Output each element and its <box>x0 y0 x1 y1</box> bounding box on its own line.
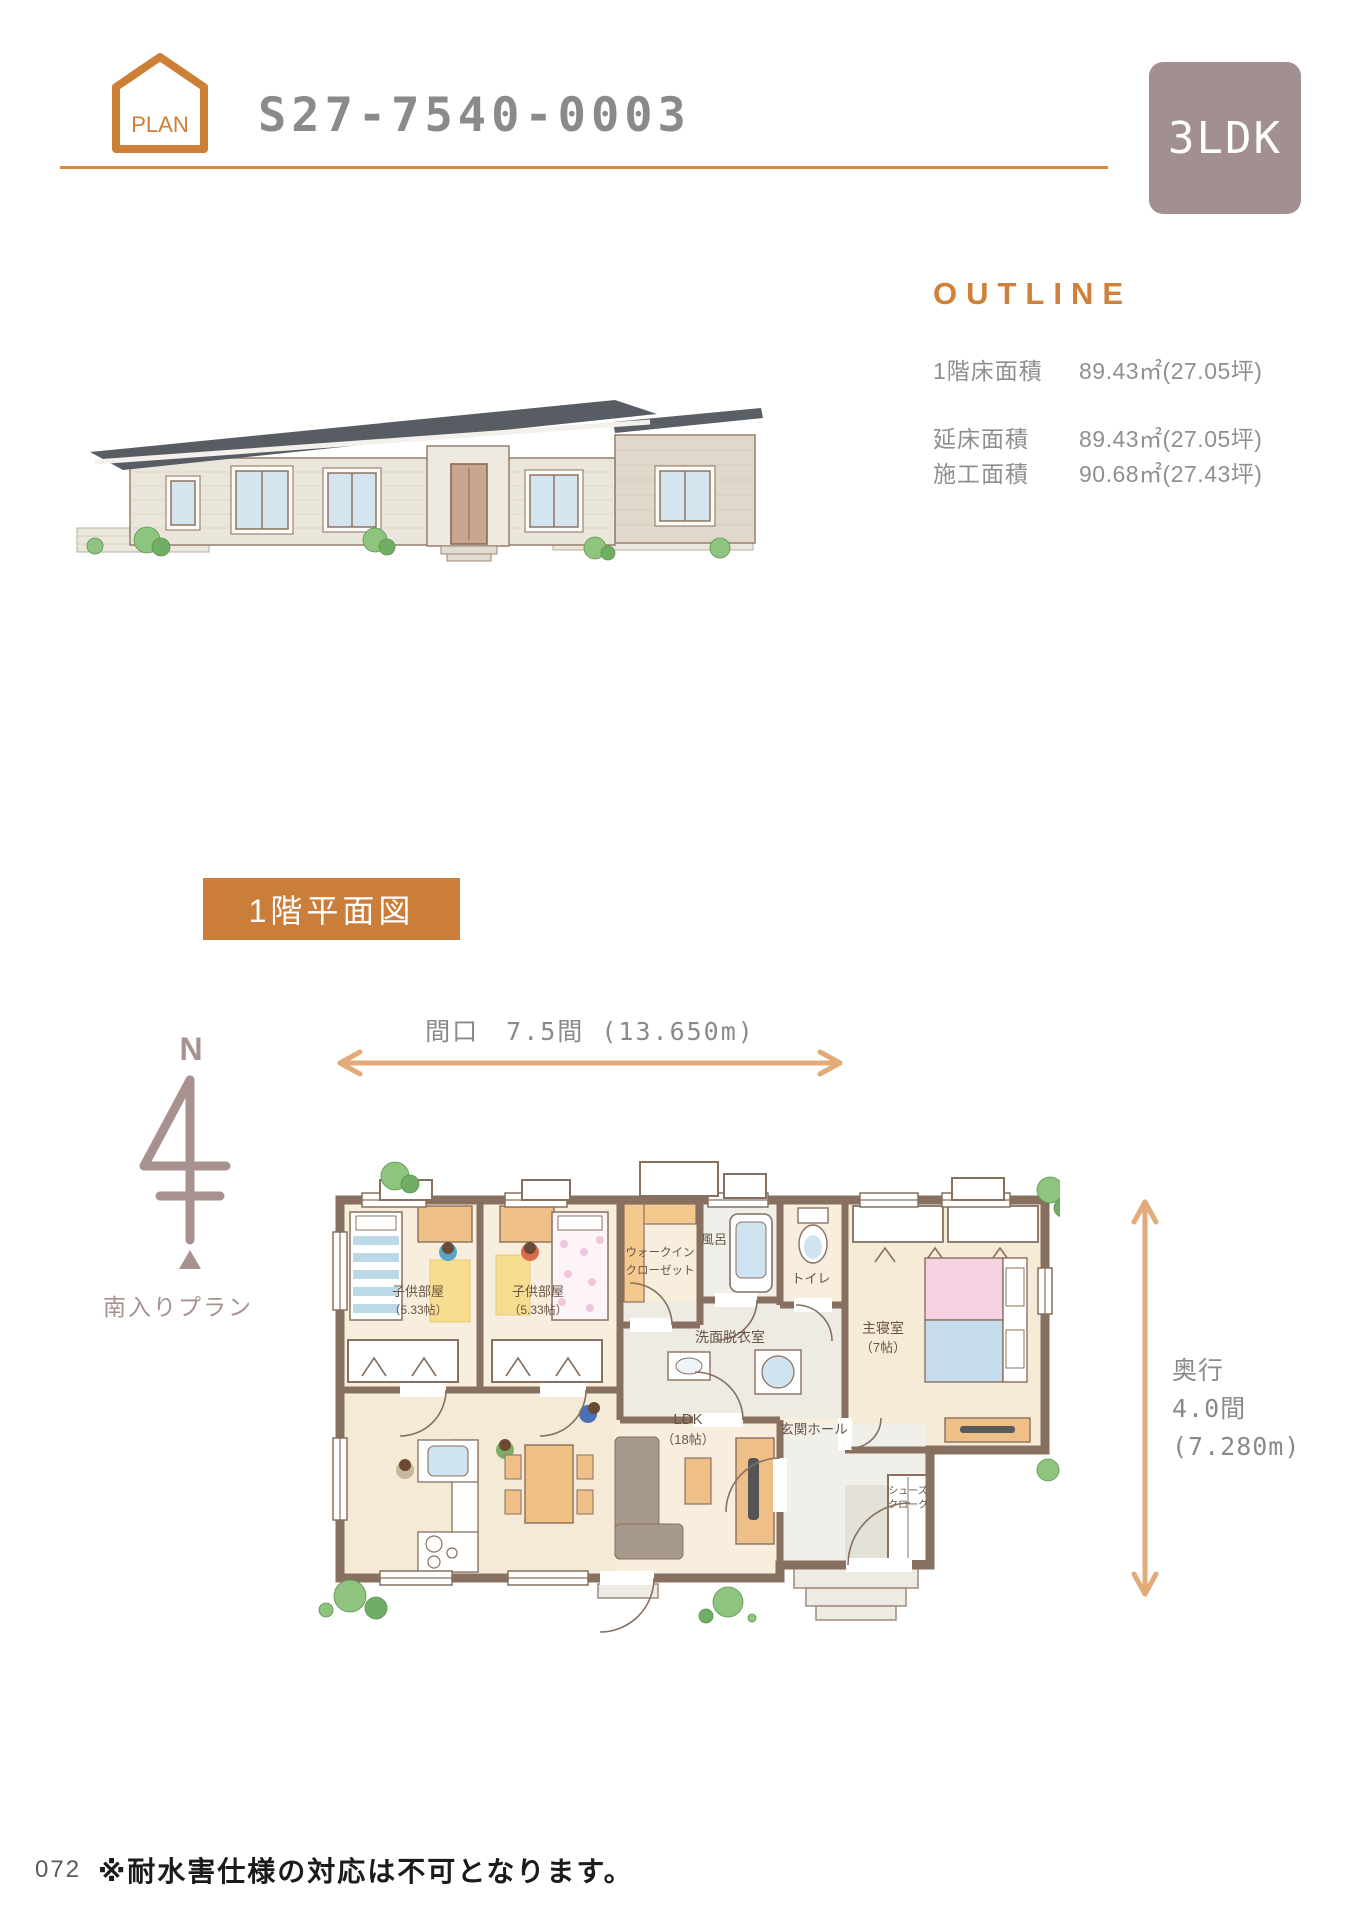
depth-dim-line1: 奥行 <box>1172 1352 1300 1390</box>
toilet-label: トイレ <box>791 1271 830 1286</box>
bathtub <box>730 1214 772 1292</box>
layout-type-badge: 3LDK <box>1149 62 1301 214</box>
outline-row-value: 90.68㎡(27.43坪) <box>1079 455 1262 489</box>
shoes-closet-label-line1: シューズ <box>888 1484 928 1497</box>
header-divider <box>60 166 1108 169</box>
toilet-fixture <box>798 1208 828 1263</box>
depth-dim-line3: (7.280m) <box>1172 1428 1300 1466</box>
master-bedroom-size: （7帖） <box>860 1340 906 1355</box>
kids-room2-size: （5.33帖） <box>508 1302 567 1317</box>
washroom-label: 洗面脱衣室 <box>695 1329 765 1345</box>
page-number: 072 <box>35 1856 81 1884</box>
depth-dim-line2: 4.0間 <box>1172 1390 1300 1428</box>
depth-dimension-arrow <box>1128 1192 1162 1604</box>
bath-label: 風呂 <box>701 1232 727 1247</box>
entrance-hall-label: 玄関ホール <box>780 1421 848 1437</box>
wic-label-line1: ウォークイン <box>626 1246 695 1259</box>
kids-room1-label: 子供部屋 <box>392 1284 444 1299</box>
plan-house-badge-icon: PLAN <box>112 52 208 154</box>
outline-row-label: 延床面積 <box>933 420 1079 454</box>
north-compass-icon: N <box>120 1028 260 1270</box>
footer-note: ※耐水害仕様の対応は不可となります。 <box>98 1850 634 1890</box>
floorplan-section-heading: 1階平面図 <box>203 878 460 940</box>
kids-room2-label: 子供部屋 <box>512 1284 564 1299</box>
outline-title: OUTLINE <box>933 276 1132 312</box>
width-dimension-label: 間口 7.5間 (13.650m) <box>420 1012 760 1048</box>
outline-row: 延床面積 89.43㎡(27.05坪) <box>933 420 1262 454</box>
catalog-page: PLAN S27-7540-0003 3LDK OUTLINE 1階床面積 89… <box>0 0 1358 1920</box>
master-bedroom-label: 主寝室 <box>862 1320 904 1336</box>
plan-badge-label: PLAN <box>131 112 188 137</box>
entry-direction-label: 南入りプラン <box>88 1288 268 1322</box>
shoes-closet-label-line2: クローク <box>888 1499 928 1511</box>
floor-plan: 子供部屋 （5.33帖） 子供部屋 （5.33帖） ウォークイン クローゼット … <box>300 1140 1060 1660</box>
plan-number-title: S27-7540-0003 <box>258 88 691 143</box>
house-exterior-illustration <box>75 340 765 575</box>
depth-dimension-label: 奥行 4.0間 (7.280m) <box>1172 1352 1300 1466</box>
outline-row-label: 施工面積 <box>933 455 1079 489</box>
kids-room1-size: （5.33帖） <box>388 1302 447 1317</box>
ldk-size: （18帖） <box>661 1432 714 1447</box>
width-dimension-arrow <box>330 1048 850 1078</box>
outline-row-label: 1階床面積 <box>933 352 1079 386</box>
north-letter: N <box>179 1031 202 1067</box>
outline-row-value: 89.43㎡(27.05坪) <box>1079 420 1262 454</box>
outline-row: 1階床面積 89.43㎡(27.05坪) <box>933 352 1262 386</box>
ldk-label: LDK <box>673 1411 702 1428</box>
outline-row: 施工面積 90.68㎡(27.43坪) <box>933 455 1262 489</box>
wic-label-line2: クローゼット <box>626 1264 695 1277</box>
entrance-porch <box>427 446 509 561</box>
outline-row-value: 89.43㎡(27.05坪) <box>1079 352 1262 386</box>
